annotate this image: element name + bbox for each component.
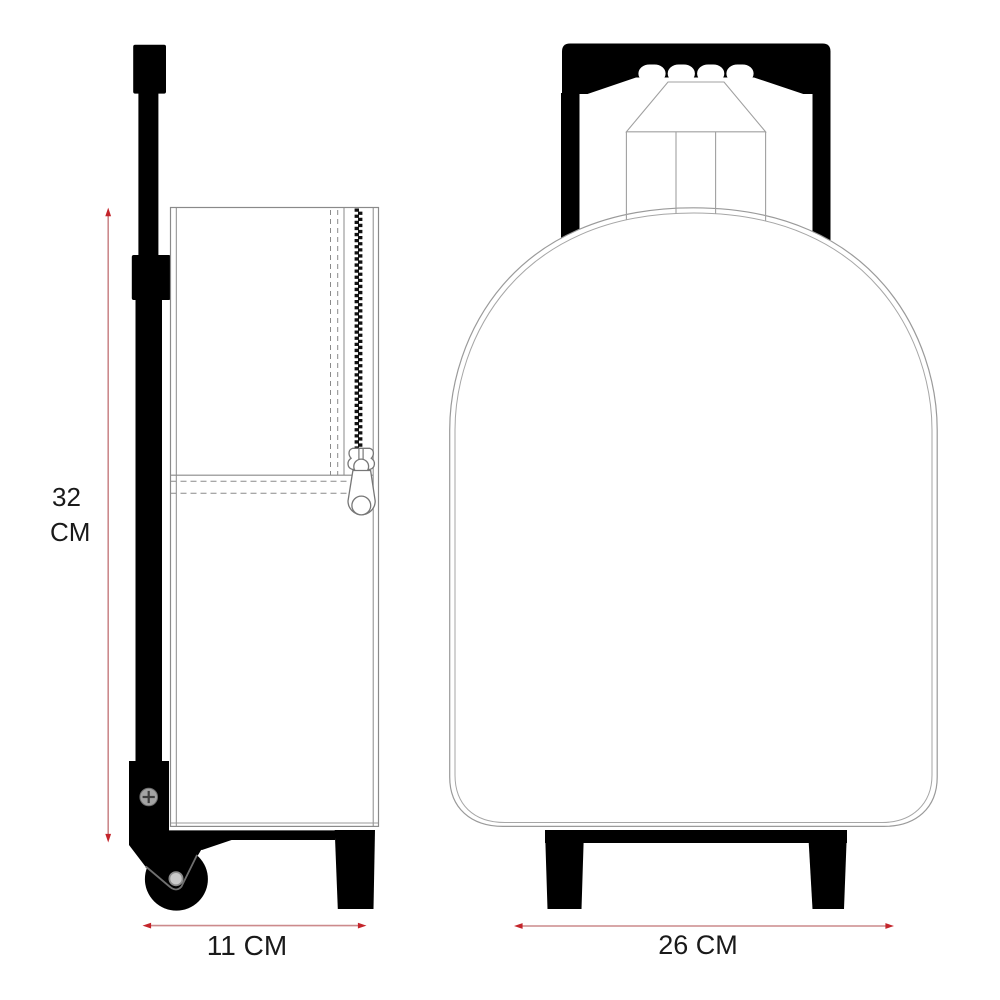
svg-text:11 CM: 11 CM	[207, 930, 287, 961]
svg-text:26 CM: 26 CM	[658, 930, 738, 960]
svg-text:CM: CM	[50, 517, 90, 547]
svg-text:32: 32	[52, 482, 81, 512]
